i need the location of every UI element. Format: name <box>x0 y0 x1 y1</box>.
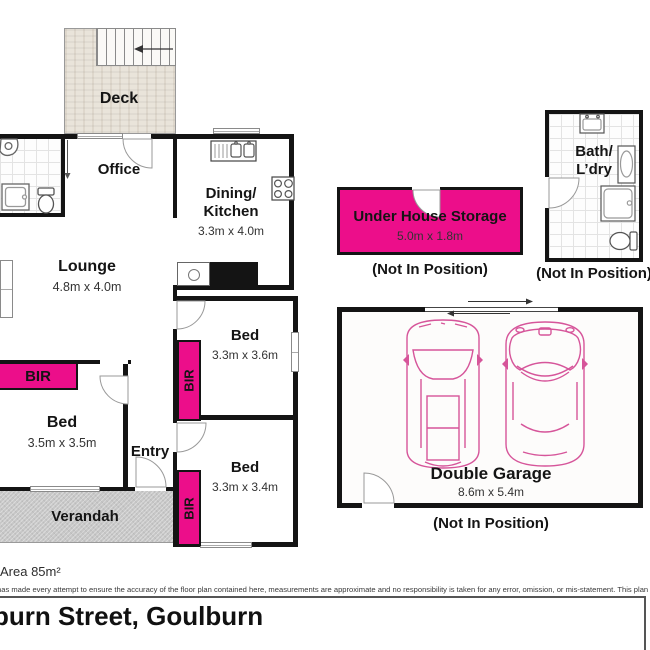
storage-note: (Not In Position) <box>340 261 520 278</box>
bathroom-floor <box>0 138 61 213</box>
garage-label: Double Garage <box>391 464 591 483</box>
garage-note: (Not In Position) <box>411 515 571 532</box>
wall-bathroom-right <box>61 134 65 217</box>
deck-stairs <box>96 28 176 66</box>
bed-two-door-arc <box>177 301 205 329</box>
bed-two-dims: 3.3m x 3.6m <box>195 348 295 362</box>
bath-door-opening <box>545 177 549 208</box>
entry-label: Entry <box>110 444 190 461</box>
bath-laundry-box <box>545 110 643 262</box>
wall-bed2-top <box>173 296 298 301</box>
floor-plan-page: BIR BIR BIR <box>0 0 650 650</box>
deck-label: Deck <box>69 90 169 108</box>
wall-kitchen-right <box>289 134 294 290</box>
bir-lounge: BIR <box>0 362 78 390</box>
entry-door-opening <box>135 487 166 491</box>
bir-label: BIR <box>182 497 197 519</box>
wall-bed-right <box>123 360 128 491</box>
dining-kitchen-label-line2: Kitchen <box>181 204 281 221</box>
kitchen-sink-icon <box>211 141 256 161</box>
lounge-label: Lounge <box>27 258 147 276</box>
bed-main-window <box>30 486 100 492</box>
bed-two-label: Bed <box>195 328 295 345</box>
lounge-dims: 4.8m x 4.0m <box>27 280 147 294</box>
office-label: Office <box>69 162 169 179</box>
bed-main-dims: 3.5m x 3.5m <box>2 436 122 450</box>
storage-label: Under House Storage <box>340 209 520 226</box>
verandah-label: Verandah <box>15 509 155 526</box>
garage-door-opening <box>362 503 394 508</box>
address-title: burn Street, Goulburn <box>0 601 263 632</box>
bir-label: BIR <box>25 368 51 385</box>
bath-laundry-label-line2: L’dry <box>554 162 634 179</box>
bir-label: BIR <box>182 369 197 391</box>
bed-two-door-opening <box>173 301 177 329</box>
lounge-window <box>0 260 13 318</box>
bed-three-dims: 3.3m x 3.4m <box>195 480 295 494</box>
appliance-icon <box>188 269 200 281</box>
storage-door-opening <box>412 187 440 190</box>
office-door-opening <box>122 134 151 139</box>
bed-three-window <box>200 542 252 548</box>
garage-sliding-door <box>425 307 558 312</box>
dining-kitchen-label-line1: Dining/ <box>181 186 281 203</box>
kitchen-window <box>213 128 260 134</box>
kitchen-counter <box>210 262 258 286</box>
floor-area-text: Area 85m² <box>0 564 61 579</box>
bed-main-door-opening <box>100 360 128 364</box>
wall-bathroom-bottom <box>0 213 65 217</box>
garage-dims: 8.6m x 5.4m <box>391 485 591 499</box>
bath-laundry-label-line1: Bath/ <box>554 144 634 161</box>
bed-main-label: Bed <box>2 414 122 432</box>
disclaimer-text: has made every attempt to ensure the acc… <box>0 585 650 594</box>
bath-laundry-note: (Not In Position) <box>524 265 650 282</box>
footer-divider <box>0 596 646 598</box>
footer-right-border <box>644 596 646 650</box>
office-window <box>77 133 123 139</box>
entry-door-arc <box>136 457 166 487</box>
wall-kitchen-left <box>173 134 177 218</box>
bed-three-label: Bed <box>195 460 295 477</box>
storage-dims: 5.0m x 1.8m <box>340 229 520 243</box>
dining-kitchen-dims: 3.3m x 4.0m <box>181 224 281 238</box>
